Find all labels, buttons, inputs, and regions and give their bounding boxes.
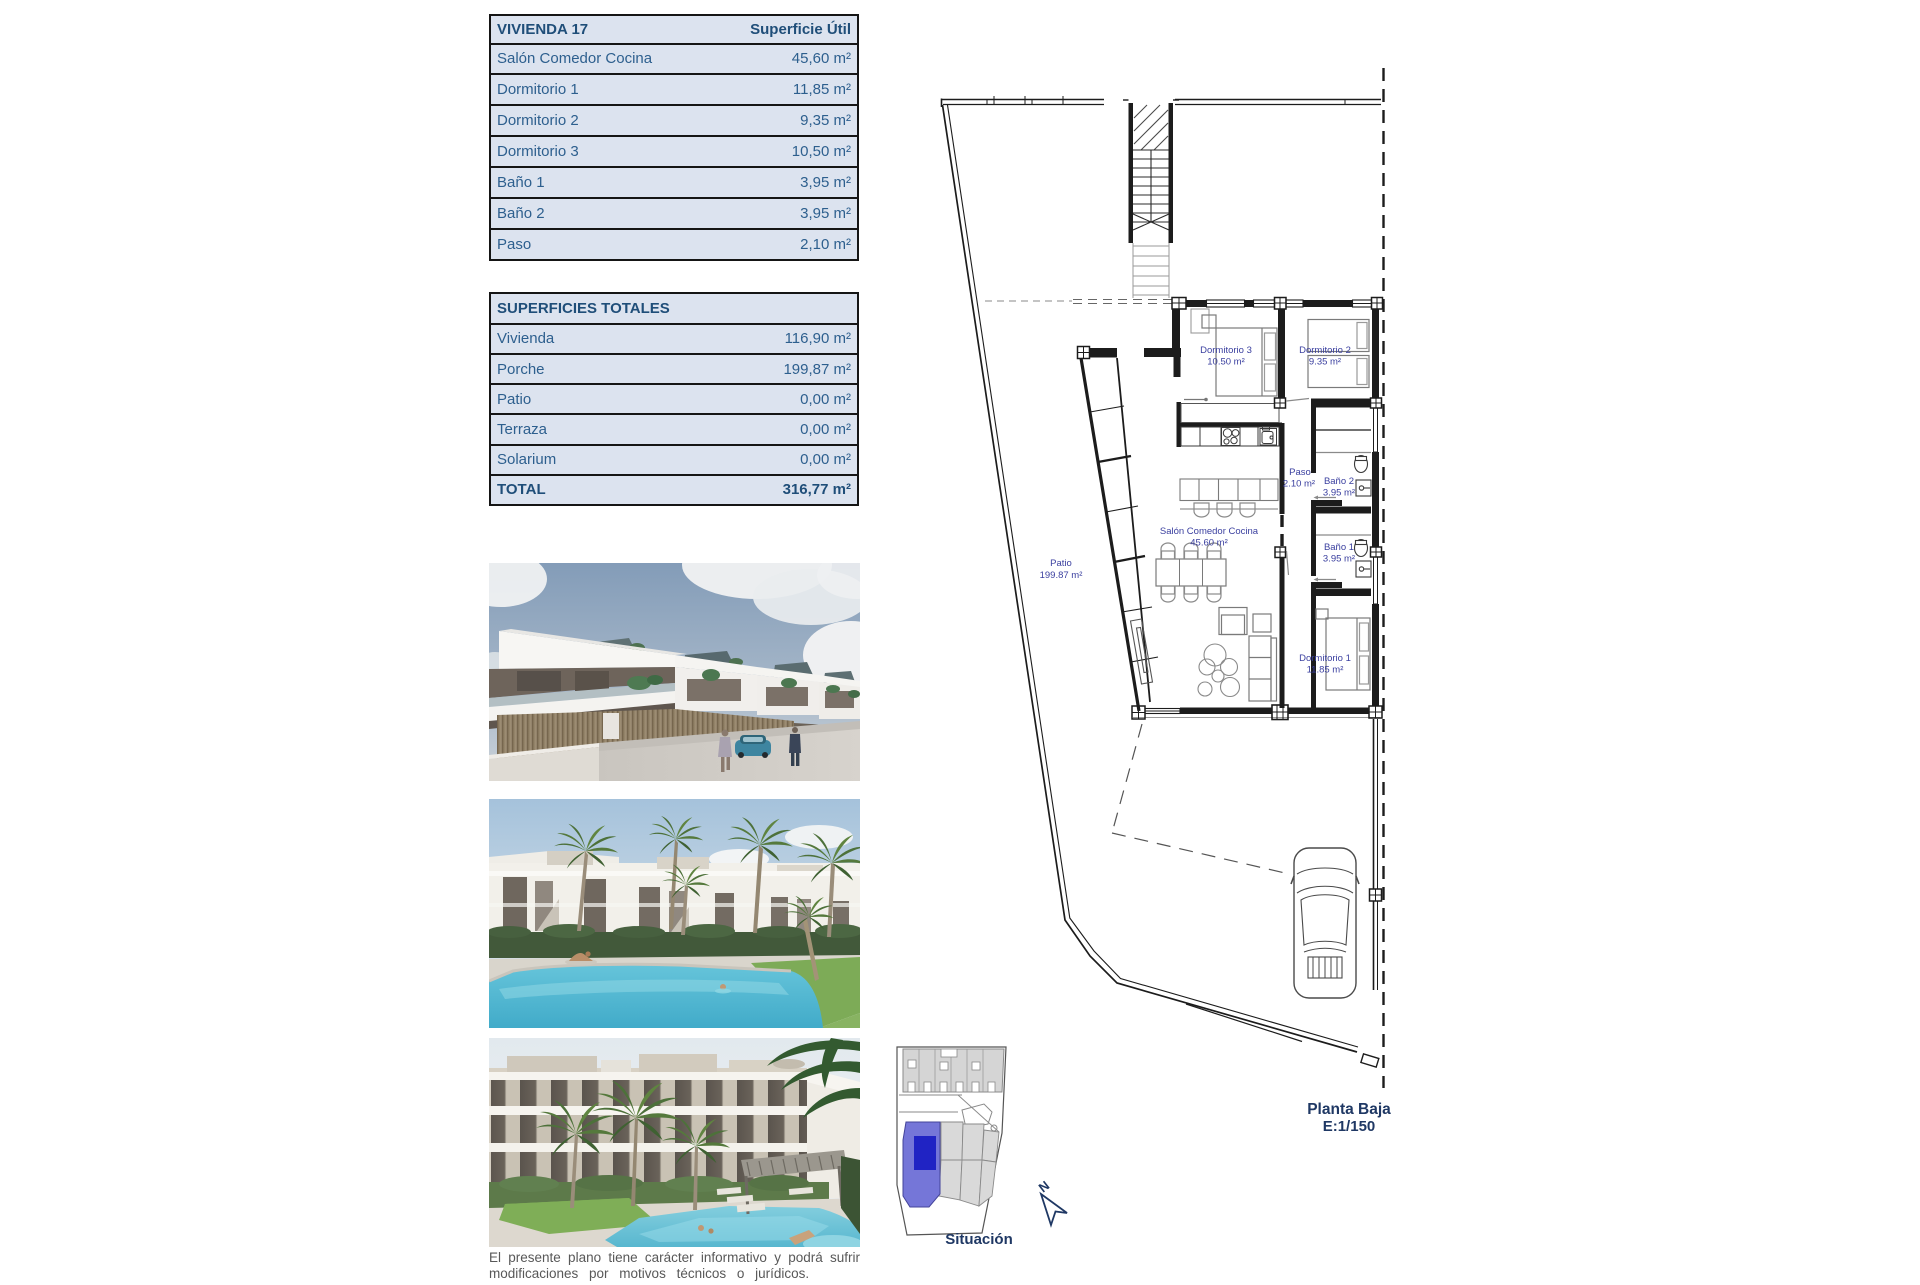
svg-text:N: N bbox=[1036, 1178, 1053, 1196]
svg-text:Patio: Patio bbox=[1050, 558, 1072, 569]
svg-text:45.60 m²: 45.60 m² bbox=[1190, 538, 1228, 549]
svg-text:Dormitorio 1: Dormitorio 1 bbox=[1299, 653, 1351, 664]
svg-text:3.95 m²: 3.95 m² bbox=[1323, 488, 1355, 499]
svg-text:3.95 m²: 3.95 m² bbox=[1323, 554, 1355, 565]
svg-text:Baño 1: Baño 1 bbox=[1324, 542, 1354, 553]
svg-text:Dormitorio 3: Dormitorio 3 bbox=[1200, 345, 1252, 356]
svg-text:199.87 m²: 199.87 m² bbox=[1040, 570, 1083, 581]
svg-text:Salón Comedor Cocina: Salón Comedor Cocina bbox=[1160, 526, 1259, 537]
svg-text:Paso: Paso bbox=[1289, 467, 1311, 478]
svg-text:Baño 2: Baño 2 bbox=[1324, 476, 1354, 487]
svg-text:9.35 m²: 9.35 m² bbox=[1309, 357, 1341, 368]
svg-text:11.85 m²: 11.85 m² bbox=[1307, 665, 1344, 676]
svg-text:10.50 m²: 10.50 m² bbox=[1207, 357, 1245, 368]
svg-text:Dormitorio 2: Dormitorio 2 bbox=[1299, 345, 1351, 356]
svg-text:2.10 m²: 2.10 m² bbox=[1283, 479, 1315, 490]
